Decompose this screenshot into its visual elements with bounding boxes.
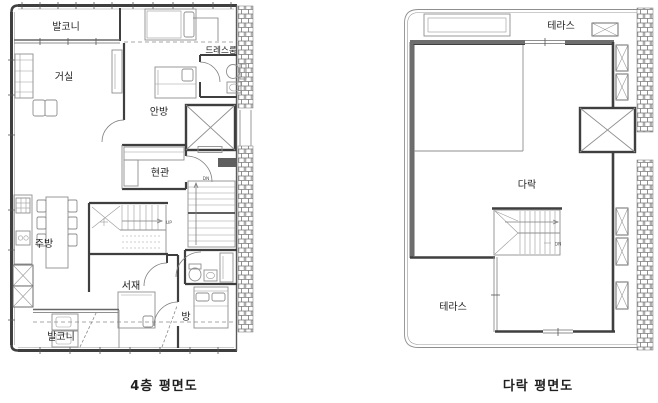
masonry-hatch-wall (637, 8, 653, 132)
swing-dashed (80, 311, 97, 347)
room-label-study: 서재 (122, 280, 140, 292)
bed-study (118, 292, 155, 328)
void-area (414, 45, 523, 151)
attic-walls (410, 38, 615, 336)
bed-top (145, 9, 196, 40)
shoe-cabinet (124, 160, 138, 186)
room-label-balcony-top: 발코니 (52, 21, 80, 33)
sink-icon (204, 270, 217, 281)
stove-icon (16, 198, 30, 213)
room-label-attic: 다락 (518, 179, 536, 191)
shoe-cabinet (124, 147, 184, 160)
attic-caption: 다락 평면도 (503, 378, 573, 394)
tv-console (112, 50, 122, 93)
vent-xbox (592, 23, 618, 36)
stair-label-dn-attic: DN (555, 242, 562, 248)
column-xboxes (616, 45, 628, 309)
planter-box (424, 14, 510, 36)
floor4-plan: 드레스룸 (8, 2, 253, 394)
room-label-balcony-bottom: 발코니 (47, 331, 75, 343)
room-label-terrace-top: 테라스 (547, 20, 575, 32)
room-label-master: 안방 (150, 106, 168, 118)
floorplan-sheet: 드레스룸 (0, 0, 658, 403)
elevator-shaft-floor4 (186, 105, 235, 153)
toilet-icon (189, 268, 201, 281)
floorplan-drawing: 드레스룸 (0, 0, 658, 403)
attic-plan: DN 테라스 다락 테라스 다락 평면도 (405, 8, 654, 394)
room-label-living: 거실 (55, 71, 73, 83)
stair-label-dn: DN (203, 176, 210, 182)
staircase-center: UP (89, 203, 172, 292)
sofa (15, 54, 33, 98)
toilet-icon (227, 65, 240, 79)
room-label-terrace-bottom: 테라스 (439, 301, 467, 313)
bath-cabinet (220, 253, 233, 282)
masonry-hatch-wall (637, 160, 653, 350)
staircase-attic: DN (492, 209, 562, 256)
masonry-hatch-wall (238, 146, 253, 332)
floor4-caption: 4층 평면도 (130, 378, 197, 394)
staircase-right: DN (188, 176, 235, 247)
kitchen-counter (14, 195, 32, 264)
room-label-kitchen: 주방 (35, 238, 53, 250)
dressroom-leader-line (193, 18, 218, 41)
door-arc-bathroom (176, 252, 201, 277)
entrance-room (122, 145, 236, 189)
doormat (218, 158, 236, 167)
elevator-shaft-attic (580, 108, 635, 152)
stair-label-up: UP (166, 220, 172, 226)
room-label-entrance: 현관 (151, 167, 169, 179)
coffee-table (33, 100, 57, 116)
dining-set (37, 197, 77, 268)
pantry-xboxes (13, 265, 33, 307)
bathroom-bottom (176, 250, 237, 284)
swing-dashed (162, 306, 177, 347)
attic-outer-boundary (405, 10, 638, 348)
balcony-bottom (33, 310, 119, 349)
door-arc-study (144, 263, 167, 286)
room-label-room: 방 (181, 311, 190, 323)
door-arc-master (102, 120, 124, 142)
bed-master (155, 67, 196, 98)
